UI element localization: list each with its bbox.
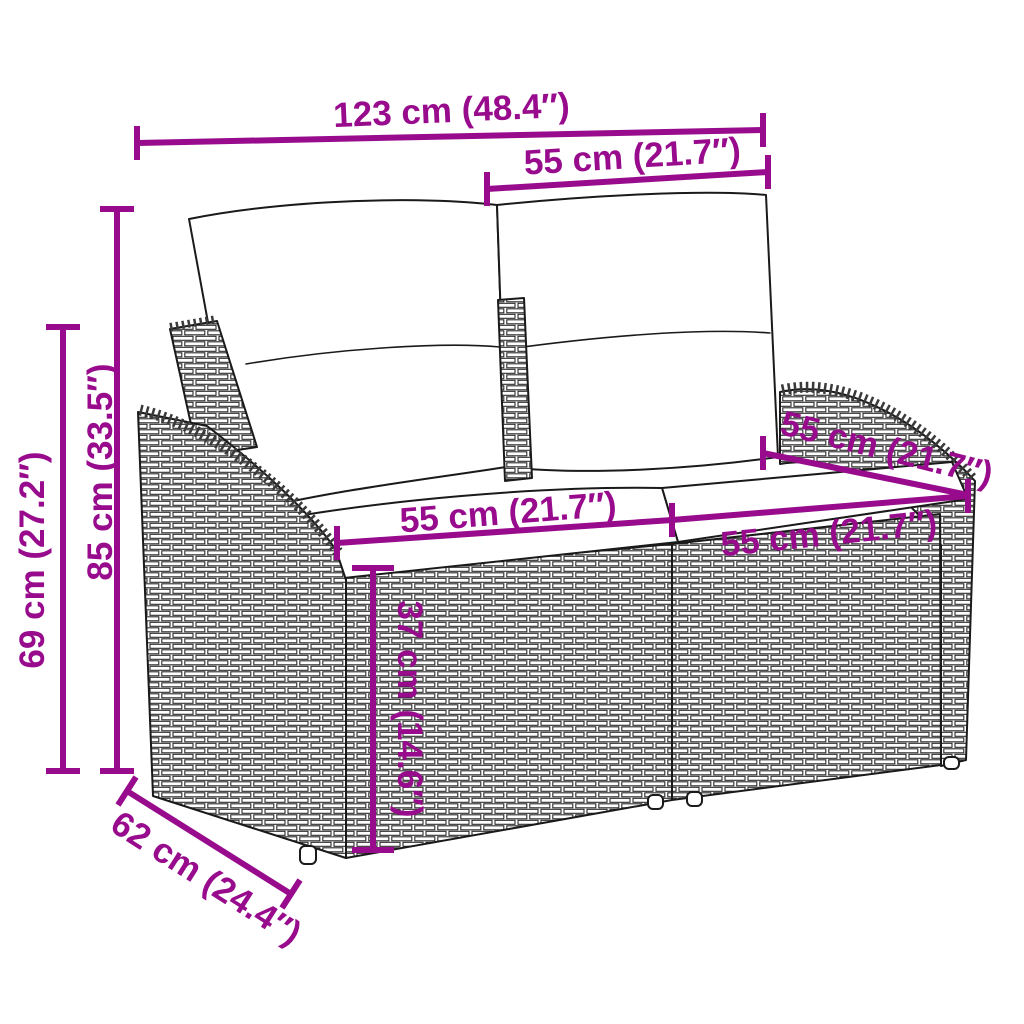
dim-armrest-height-label: 69 cm (27.2″) — [13, 451, 52, 668]
dim-overall-width-label: 123 cm (48.4″) — [332, 86, 570, 135]
dim-overall-height: 85 cm (33.5″) — [81, 209, 134, 771]
sofa-foot — [300, 846, 316, 864]
dimension-diagram: 123 cm (48.4″) 55 cm (21.7″) 85 cm (33.5… — [0, 0, 1024, 1024]
dim-seat-height-label: 37 cm (14.6″) — [390, 600, 429, 817]
sofa-foot — [687, 792, 702, 806]
dim-armrest-height: 69 cm (27.2″) — [13, 327, 80, 771]
sofa-dimension-svg: 123 cm (48.4″) 55 cm (21.7″) 85 cm (33.5… — [0, 0, 1024, 1024]
dim-overall-height-label: 85 cm (33.5″) — [81, 363, 120, 580]
sofa-foot — [944, 757, 959, 769]
sofa-foot — [648, 795, 663, 809]
